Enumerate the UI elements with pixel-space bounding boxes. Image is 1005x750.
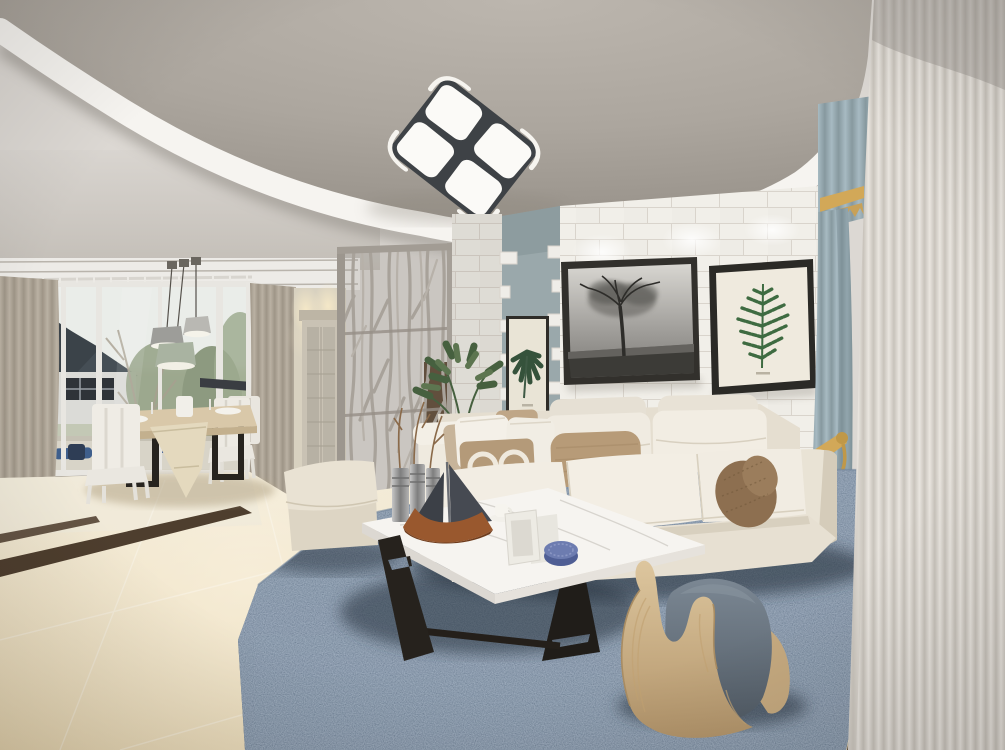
living-room-render [0, 0, 1005, 750]
scene-canvas [0, 0, 1005, 750]
vignette [0, 0, 1005, 750]
